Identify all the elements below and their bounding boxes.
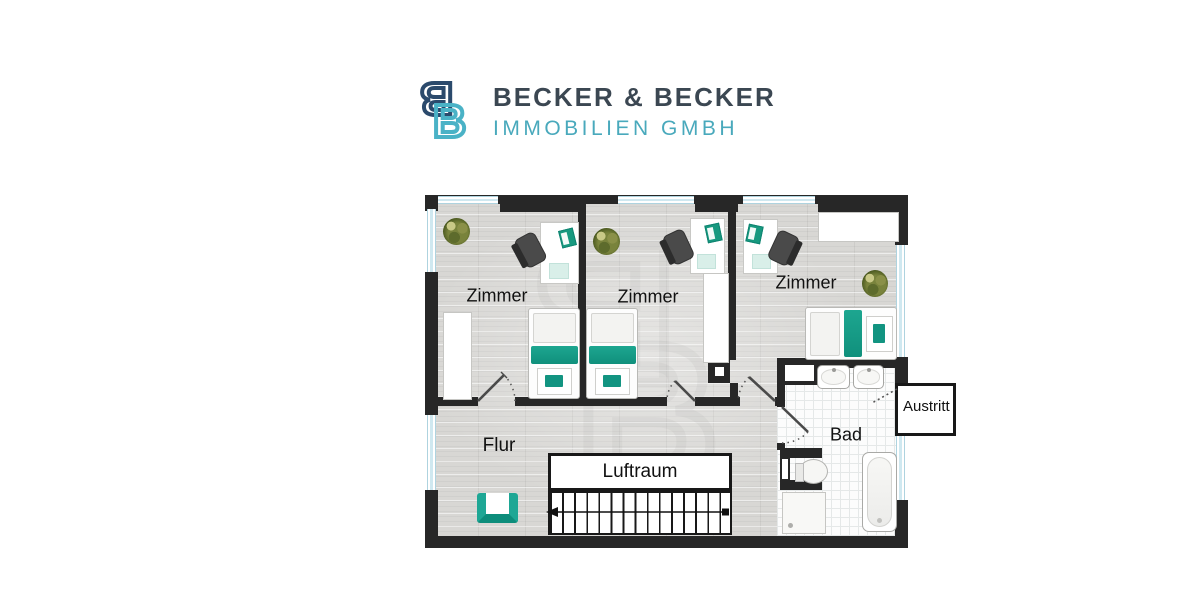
blanket bbox=[589, 346, 636, 364]
duct-opening bbox=[782, 459, 788, 479]
laptop-icon bbox=[558, 227, 577, 248]
logo-subtitle: IMMOBILIEN GMBH bbox=[493, 117, 776, 141]
laptop-icon bbox=[745, 224, 763, 245]
window bbox=[427, 415, 436, 490]
room-label-bad: Bad bbox=[830, 425, 862, 446]
shaft-opening bbox=[715, 367, 724, 376]
room-label-zimmer-1: Zimmer bbox=[467, 286, 528, 307]
plant-icon bbox=[443, 218, 470, 245]
logo-mark-b-teal-icon: B bbox=[433, 98, 466, 144]
window bbox=[427, 209, 436, 272]
desk-pad bbox=[549, 263, 569, 279]
bed-cushion bbox=[873, 324, 886, 342]
bed-icon bbox=[805, 307, 897, 360]
window bbox=[743, 196, 815, 204]
bed-cushion bbox=[603, 375, 621, 387]
bed-icon bbox=[586, 308, 638, 399]
sink-icon bbox=[817, 365, 850, 389]
wall-segment bbox=[500, 195, 586, 212]
wall-segment bbox=[695, 397, 740, 406]
room-label-luftraum: Luftraum bbox=[603, 461, 678, 483]
logo-title: BECKER & BECKER bbox=[493, 82, 776, 113]
wardrobe-icon bbox=[443, 312, 472, 400]
wall-segment bbox=[777, 358, 785, 407]
window bbox=[896, 433, 905, 500]
room-label-flur: Flur bbox=[483, 435, 516, 457]
desk-icon bbox=[690, 218, 725, 274]
wall-segment bbox=[730, 383, 738, 397]
plant-icon bbox=[862, 270, 888, 297]
bathroom-niche bbox=[780, 358, 820, 385]
plant-icon bbox=[593, 228, 620, 255]
blanket bbox=[531, 346, 578, 364]
floor-plan: B B bbox=[425, 195, 908, 548]
desk-pad bbox=[752, 254, 771, 269]
desk-pad bbox=[697, 254, 716, 269]
pillow bbox=[533, 313, 576, 343]
blanket bbox=[844, 310, 862, 358]
wardrobe-icon bbox=[818, 212, 899, 242]
bathtub-icon bbox=[862, 452, 897, 532]
room-label-austritt: Austritt bbox=[903, 398, 950, 415]
window bbox=[435, 196, 498, 204]
window bbox=[618, 196, 694, 204]
sink-icon bbox=[853, 365, 884, 389]
shower-icon bbox=[782, 492, 826, 534]
wall-segment bbox=[728, 204, 736, 360]
bed-cushion bbox=[545, 375, 563, 387]
page: B B BECKER & BECKER IMMOBILIEN GMBH B B bbox=[0, 0, 1200, 600]
laptop-icon bbox=[704, 223, 722, 244]
void-luftraum: Luftraum bbox=[548, 453, 732, 491]
wall-segment bbox=[425, 536, 908, 548]
armchair-icon bbox=[477, 493, 518, 523]
logo-monogram: B B bbox=[419, 74, 481, 148]
room-label-zimmer-3: Zimmer bbox=[776, 273, 837, 294]
shaft-column bbox=[708, 360, 730, 383]
toilet-icon bbox=[799, 459, 828, 484]
logo-text: BECKER & BECKER IMMOBILIEN GMBH bbox=[493, 74, 776, 141]
room-label-zimmer-2: Zimmer bbox=[618, 287, 679, 308]
window bbox=[896, 245, 905, 357]
balcony-austritt: Austritt bbox=[895, 383, 956, 436]
pillow bbox=[810, 312, 841, 356]
desk-icon bbox=[540, 222, 579, 284]
company-logo: B B BECKER & BECKER IMMOBILIEN GMBH bbox=[419, 74, 776, 148]
wall-segment bbox=[425, 272, 438, 415]
stairs-icon bbox=[548, 491, 732, 535]
pillow bbox=[591, 313, 634, 343]
niche-opening bbox=[785, 365, 814, 381]
wardrobe-icon bbox=[703, 273, 729, 363]
bed-icon bbox=[528, 308, 580, 399]
